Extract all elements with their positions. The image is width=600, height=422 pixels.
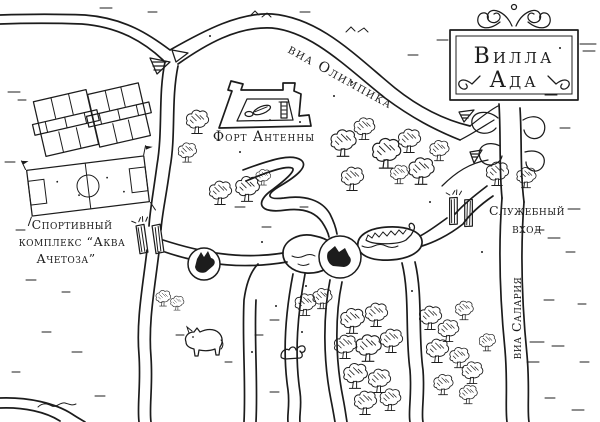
tree-icon [426,339,448,362]
tree-icon [341,167,363,190]
tree-icon [373,139,401,169]
tree-icon [434,374,453,394]
park-path-gate-to-lake [163,240,287,422]
road-via-olimpica [0,14,470,140]
tree-icon [354,391,376,414]
tree-icon [354,118,375,140]
service-entrance-label-line1: Служебный [489,203,565,218]
tree-icon [380,329,402,352]
villa-ada-sign: Вилла Ада [437,5,596,101]
animal-head-medallion-icon [319,236,361,278]
rhinoceros-icon [185,327,222,356]
tree-icon [430,140,449,160]
villa-ada-map: Вилла Ада [0,0,600,422]
tree-icon [391,165,409,184]
sign-title-line2: Ада [489,68,538,93]
via-olimpica-label: виа Олимпика [285,42,396,113]
tree-icon [171,296,184,310]
tree-icon [365,303,387,326]
tree-icon [156,290,171,306]
tennis-court-icon [82,81,157,148]
tree-icon [450,347,469,367]
tree-icon [462,362,483,384]
sports-complex-label-line3: Ачетоза” [36,251,95,266]
fort-plan-icon [219,81,311,128]
scroll-ornament-icon [478,5,550,28]
tree-icon [341,308,365,333]
tree-icon [313,288,332,308]
service-entrance-label-line2: вход [512,221,542,236]
tree-icon [409,158,434,184]
fort-label: Форт Антенны [213,129,315,145]
tree-icon [456,301,474,320]
tennis-court-icon [28,88,105,157]
tree-icon [380,389,401,411]
tree-icon [438,320,459,342]
map-canvas: Вилла Ада [0,0,600,422]
park-path-zigzag [243,157,337,237]
sports-complex-label-line2: комплекс “Аква [19,234,126,249]
sports-complex [20,81,160,225]
via-salaria-label: виа Салария [509,277,524,360]
service-entrance-gate-icon [444,189,475,227]
tree-icon [398,129,420,152]
tree-icon [356,335,381,361]
tree-icon [295,294,316,316]
tree-icon [178,143,196,162]
tree-icon [344,363,368,388]
ruins-columns-icon [245,102,289,121]
park-gate-icon [131,215,164,255]
tree-icon [486,162,508,185]
tree-icon [331,130,356,156]
wolf-head-medallion-icon [188,248,220,280]
tree-icon [209,181,231,204]
flourish-left [459,76,480,89]
sign-title-line1: Вилла [474,44,555,69]
tree-icon [186,110,208,133]
tree-icon [460,385,478,404]
sports-complex-label-line1: Спортивный [32,217,113,232]
flourish-right [548,76,569,89]
soccer-field-icon [20,145,160,226]
tree-icon [479,334,495,351]
